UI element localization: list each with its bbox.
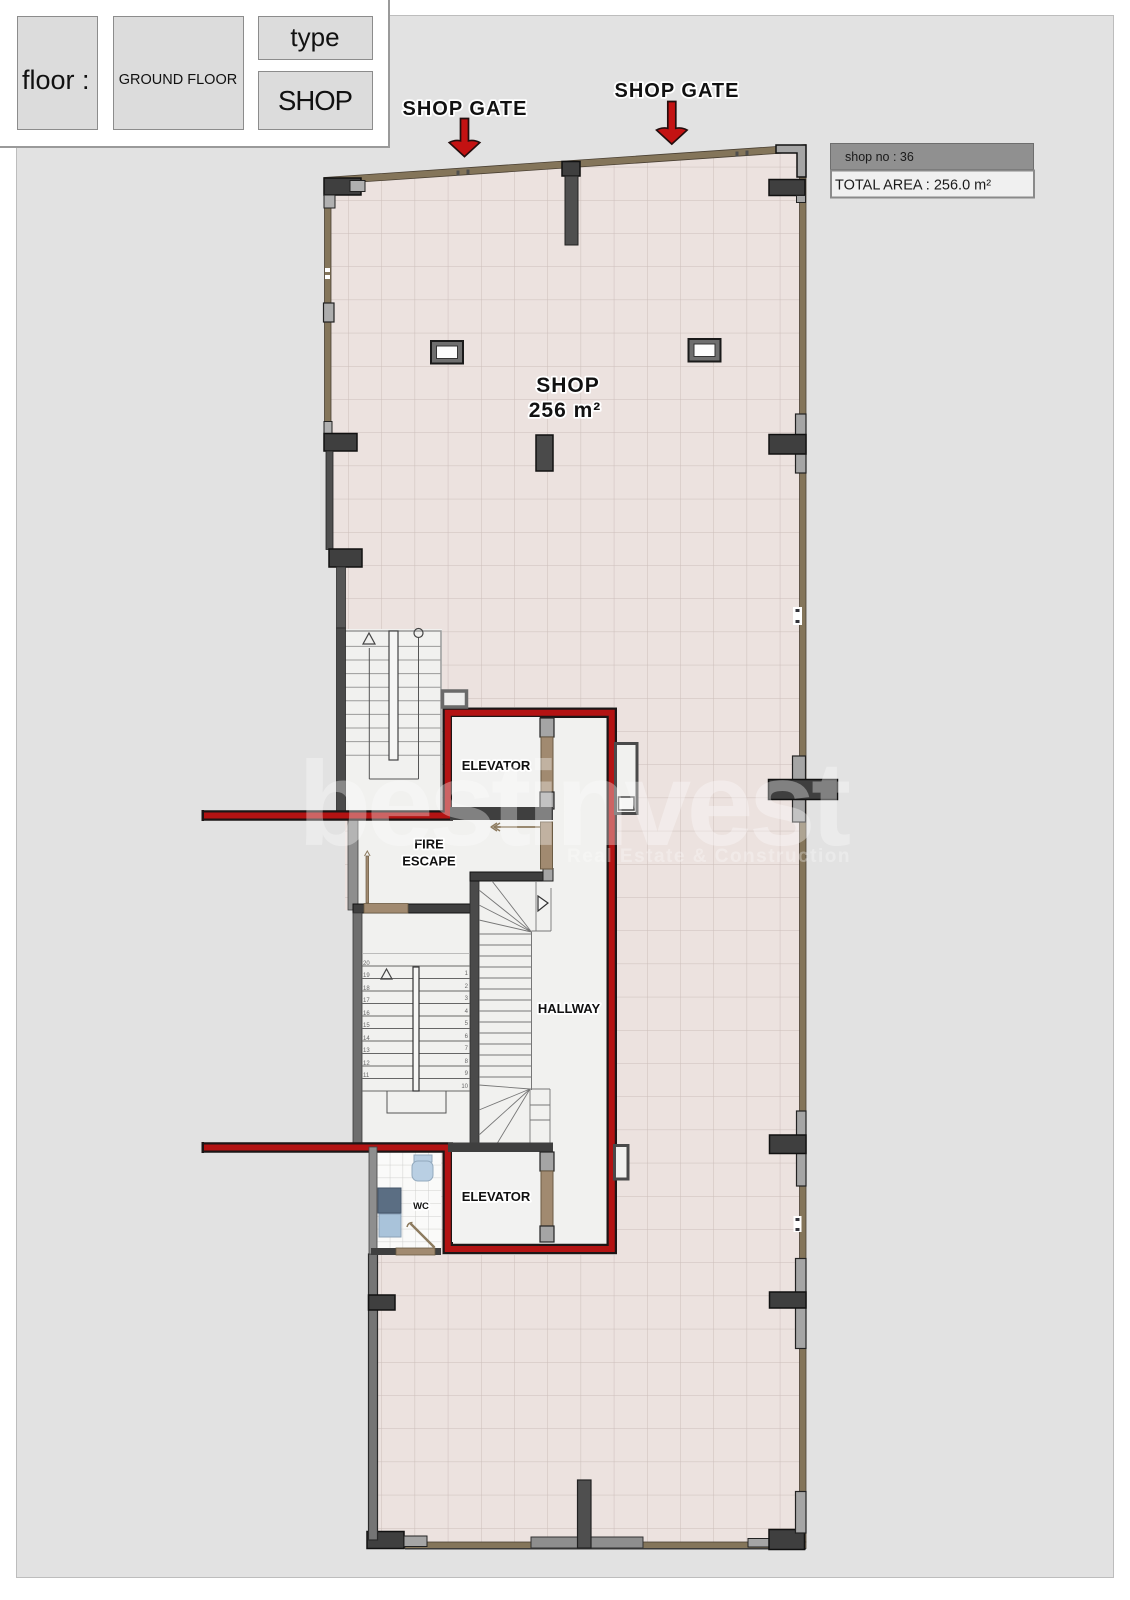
- svg-text:TOTAL AREA : 256.0 m²: TOTAL AREA : 256.0 m²: [835, 178, 991, 194]
- svg-text:SHOP GATE: SHOP GATE: [615, 80, 740, 102]
- svg-text:19: 19: [363, 973, 370, 979]
- svg-text:WC: WC: [413, 1201, 429, 1212]
- svg-text:20: 20: [363, 961, 370, 967]
- svg-text:14: 14: [363, 1036, 370, 1042]
- svg-text:ELEVATOR: ELEVATOR: [462, 1189, 531, 1204]
- svg-text:15: 15: [363, 1023, 370, 1029]
- svg-text:13: 13: [363, 1048, 370, 1054]
- svg-text:SHOP GATE: SHOP GATE: [403, 98, 528, 120]
- svg-text:SHOP: SHOP: [278, 85, 352, 116]
- svg-text:17: 17: [363, 998, 370, 1004]
- svg-text:10: 10: [461, 1084, 468, 1090]
- svg-text:18: 18: [363, 986, 370, 992]
- svg-text:Real Estate & Construction: Real Estate & Construction: [567, 846, 851, 867]
- svg-text:16: 16: [363, 1011, 370, 1017]
- svg-text:11: 11: [363, 1073, 370, 1079]
- svg-text:shop no : 36: shop no : 36: [845, 150, 914, 164]
- svg-text:SHOP: SHOP: [536, 374, 600, 397]
- svg-text:GROUND FLOOR: GROUND FLOOR: [119, 72, 237, 88]
- svg-text:12: 12: [363, 1061, 370, 1067]
- svg-text:256 m²: 256 m²: [529, 399, 602, 422]
- svg-text:HALLWAY: HALLWAY: [538, 1001, 601, 1016]
- svg-text:type: type: [290, 22, 339, 52]
- svg-text:floor :: floor :: [22, 65, 90, 95]
